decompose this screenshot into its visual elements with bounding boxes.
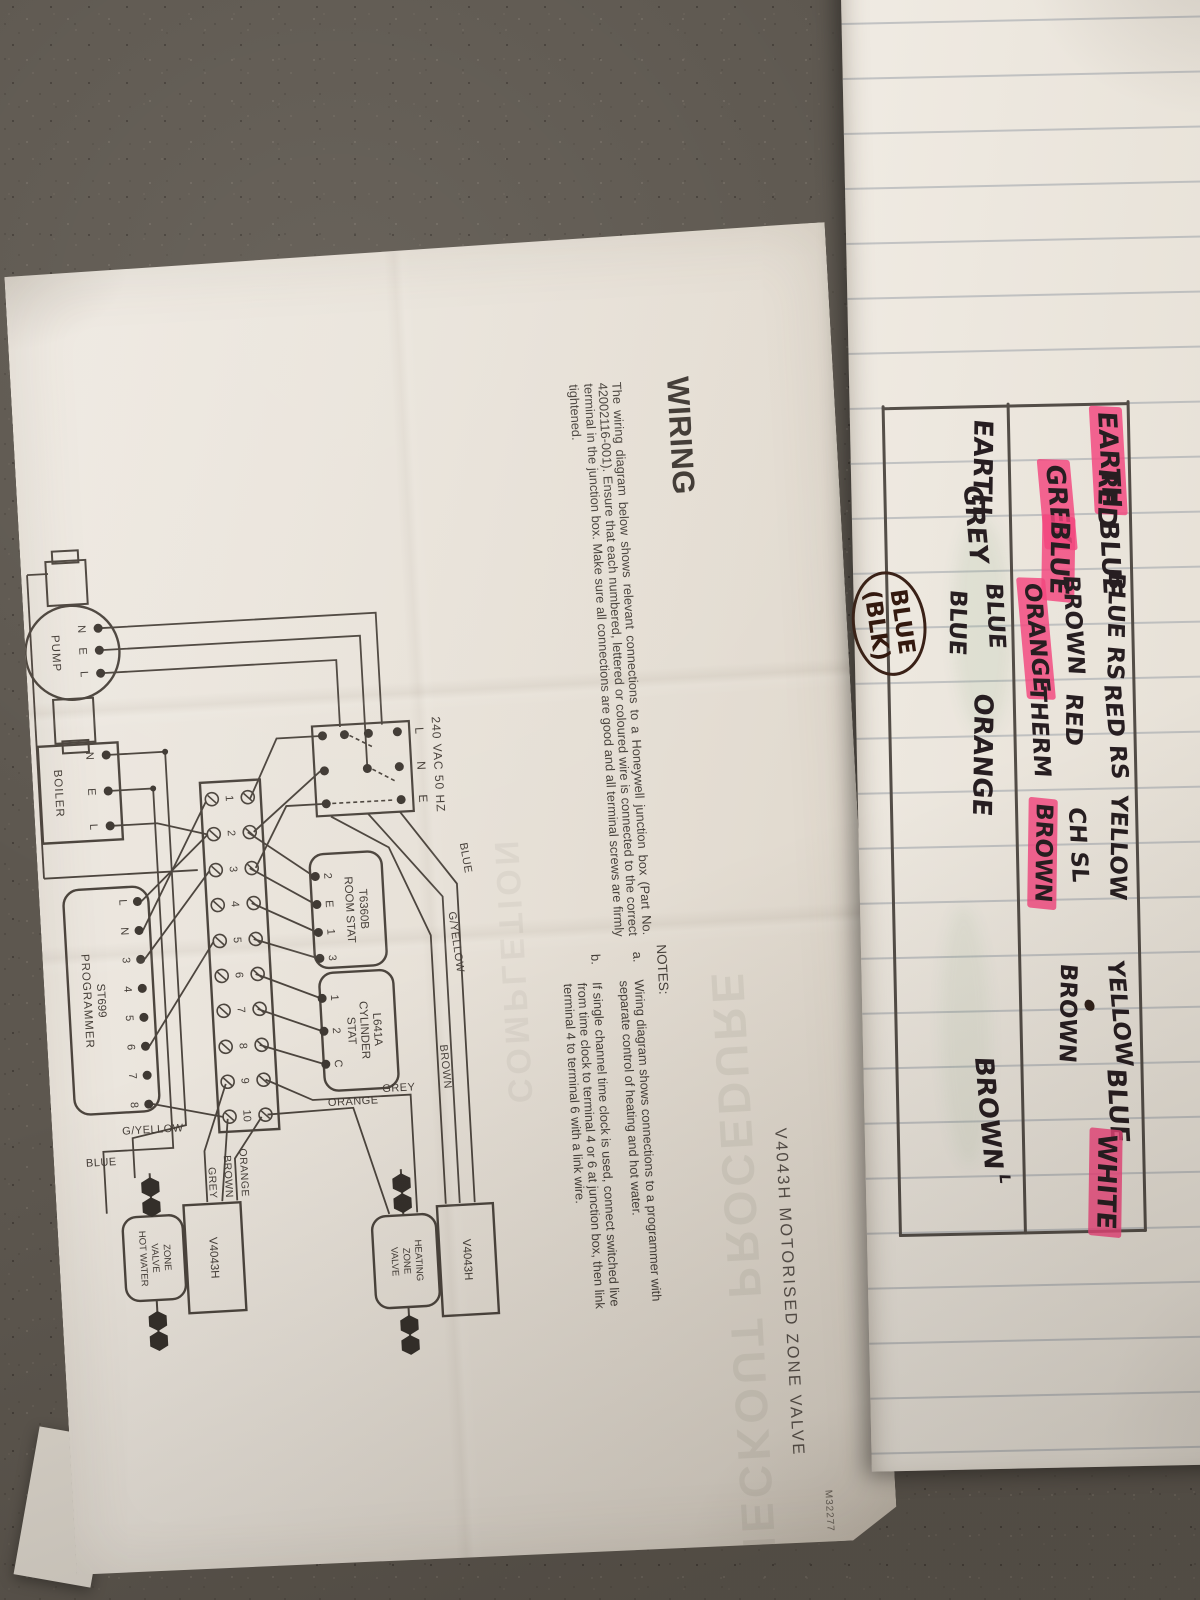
- wire-cyl-1: [256, 970, 321, 1002]
- table-line-bottom: [882, 405, 902, 1237]
- hw-cell-yellow-2: YELLOW: [1102, 960, 1138, 1067]
- wire-cyl-3: [260, 1041, 325, 1068]
- boiler-label: BOILER: [51, 769, 66, 818]
- wire-junction-dot: [162, 749, 168, 755]
- prog-terminal-6: 6: [124, 1044, 136, 1051]
- room-stat-model: T6360B: [356, 888, 370, 929]
- wiring-diagram: 240 VAC 50 HZ L N E: [4, 222, 898, 1584]
- mains-terminal-n: N: [414, 761, 428, 770]
- mains-terminal-e: E: [416, 794, 430, 803]
- boiler-terminal-l: L: [87, 823, 99, 830]
- programmer-name: PROGRAMMER: [78, 954, 95, 1050]
- sheet-rotated-content: CHECKOUT PROCEDURE COMPLETION V4043H MOT…: [4, 222, 898, 1584]
- room-stat-terminal-e: E: [323, 900, 335, 908]
- wire-boiler-l: [112, 820, 208, 839]
- wire-boiler-n-gyellow: [108, 752, 189, 1179]
- cylinder-stat: L641A CYLINDER STAT 1 2 C: [316, 969, 399, 1091]
- mains-title: 240 VAC 50 HZ: [429, 716, 448, 813]
- wire-label-grey-2: GREY: [205, 1167, 219, 1199]
- room-stat-terminal-1: 1: [324, 928, 336, 935]
- notebook-rotated-content: EARTH RED GREY BLUE BLUE BLUE RS BROWN O…: [840, 0, 1200, 1472]
- junction-terminal-10: 10: [240, 1109, 253, 1122]
- prog-terminal-4: 4: [121, 986, 133, 993]
- ch-valve-line2: ZONE: [400, 1248, 412, 1275]
- hw-valve-line1: ZONE: [161, 1244, 173, 1271]
- hw-cell-therm: THERM: [1024, 685, 1055, 778]
- wire-prog-5: [153, 1100, 224, 1121]
- hw-superscript-l: L: [995, 1174, 1014, 1184]
- programmer: L N 3 4 5 6 7 8 ST699 PROGRAMMER: [63, 886, 160, 1115]
- hw-cell-brown-1: BROWN: [1057, 575, 1089, 676]
- wire-bus-riser-right: [44, 870, 198, 879]
- pump-terminal-e: E: [76, 647, 88, 655]
- hw-cell-white-hl: WHITE: [1088, 1127, 1123, 1238]
- instruction-sheet: CHECKOUT PROCEDURE COMPLETION V4043H MOT…: [4, 222, 898, 1584]
- ch-valve-line3: VALVE: [388, 1247, 401, 1277]
- cyl-stat-name-2: STAT: [344, 1017, 358, 1045]
- prog-terminal-n: N: [118, 927, 130, 936]
- photo-of-wiring-document: CHECKOUT PROCEDURE COMPLETION V4043H MOT…: [0, 0, 1200, 1600]
- hw-cell-brown-3: BROWNL: [968, 1056, 1014, 1184]
- hw-cell-blue-3: BLUE: [980, 582, 1010, 649]
- room-stat-name: ROOM STAT: [341, 876, 357, 943]
- wire-pump-l: [105, 660, 340, 740]
- prog-terminal-l: L: [116, 899, 128, 906]
- room-stat-terminal-2: 2: [321, 872, 333, 879]
- cyl-terminal-2: 2: [330, 1027, 342, 1034]
- wire-roomstat-3: [252, 900, 318, 937]
- wire-label-orange-2: ORANGE: [236, 1148, 251, 1197]
- prog-terminal-3: 3: [120, 957, 132, 964]
- wire-label-blue-2: BLUE: [86, 1156, 117, 1170]
- hw-cell-ch-sl: CH SL: [1063, 807, 1093, 884]
- pump-terminal-n: N: [75, 625, 87, 634]
- wire-label-grey: GREY: [382, 1081, 416, 1095]
- wire-junction-dot: [150, 785, 156, 791]
- wire-label-brown-2: BROWN: [221, 1155, 235, 1198]
- hw-cell-brown-2: BROWN: [1054, 962, 1081, 1064]
- mains-block: 240 VAC 50 HZ L N E: [312, 716, 448, 819]
- notebook-page: EARTH RED GREY BLUE BLUE BLUE RS BROWN O…: [840, 0, 1200, 1472]
- wire-roomstat-4: [254, 935, 319, 962]
- boiler-terminal-e: E: [85, 788, 97, 796]
- wire-cyl-2: [258, 1005, 323, 1035]
- cyl-terminal-1: 1: [328, 994, 340, 1001]
- table-line-middle: [1007, 403, 1027, 1235]
- wire-mains-drop-l: [247, 736, 322, 799]
- pump-terminal-l: L: [77, 671, 89, 678]
- heating-valve: V4043H HEATING ZONE VALVE: [369, 1164, 501, 1357]
- junction-terminal-1: 1: [223, 795, 235, 802]
- room-stat: T6360B ROOM STAT 2 E 1 3: [309, 851, 387, 969]
- cyl-terminal-c: C: [332, 1059, 344, 1068]
- junction-terminal-8: 8: [236, 1042, 248, 1049]
- hw-cell-yellow-1: YELLOW: [1104, 793, 1132, 901]
- hw-valve-line2: VALVE: [149, 1243, 162, 1273]
- wire-pump-e: [103, 636, 367, 781]
- wire-label-gyellow-2: G/YELLOW: [122, 1122, 184, 1137]
- wire-label-orange: ORANGE: [328, 1094, 379, 1109]
- cyl-stat-model: L641A: [370, 1012, 384, 1046]
- boiler-terminal-n: N: [83, 752, 95, 761]
- junction-terminal-9: 9: [238, 1077, 250, 1084]
- wire-prog-1: [138, 834, 211, 901]
- hw-cell-red-2: RED: [1060, 692, 1087, 747]
- hw-cell-brown-hl: BROWN: [1027, 797, 1058, 911]
- junction-terminal-6: 6: [233, 972, 245, 979]
- junction-box: 1 2 3 4 5 6 7 8 9 10: [200, 779, 279, 1132]
- pump-label: PUMP: [48, 635, 62, 673]
- ch-valve-model: V4043H: [460, 1239, 474, 1281]
- wire-label-blue: BLUE: [457, 842, 474, 874]
- programmer-model: ST699: [94, 983, 108, 1018]
- junction-terminal-5: 5: [231, 937, 243, 944]
- hw-cell-blue-4: BLUE: [944, 589, 971, 657]
- junction-terminal-7: 7: [234, 1007, 246, 1014]
- hw-cell-blue-rs: BLUE RS: [1101, 571, 1129, 681]
- hw-valve-model: V4043H: [206, 1237, 220, 1279]
- wire-bus-riser-left: [27, 574, 48, 575]
- ink-blob: [1084, 999, 1094, 1011]
- prog-terminal-8: 8: [128, 1102, 140, 1109]
- junction-terminal-3: 3: [227, 866, 239, 873]
- mains-terminal-l: L: [412, 727, 426, 735]
- prog-terminal-7: 7: [126, 1073, 138, 1080]
- prog-terminal-5: 5: [123, 1015, 135, 1022]
- wire-orange-riser: [267, 1106, 389, 1220]
- hw-cell-red-rs: RED RS: [1098, 684, 1133, 780]
- wire-bus-brown: [331, 811, 446, 1209]
- hw-cell-orange-2: ORANGE: [966, 692, 998, 818]
- cyl-stat-name-1: CYLINDER: [356, 1001, 371, 1060]
- room-stat-terminal-3: 3: [326, 954, 338, 961]
- wire-label-gyellow: G/YELLOW: [446, 911, 467, 974]
- ch-valve-line1: HEATING: [412, 1239, 425, 1281]
- junction-terminal-2: 2: [225, 830, 237, 837]
- hw-valve-line3: HOT WATER: [136, 1231, 150, 1287]
- circled-note-blue-blk: BLUE (BLK): [845, 566, 933, 681]
- junction-terminal-4: 4: [229, 901, 241, 908]
- boiler: N E L BOILER: [38, 742, 123, 843]
